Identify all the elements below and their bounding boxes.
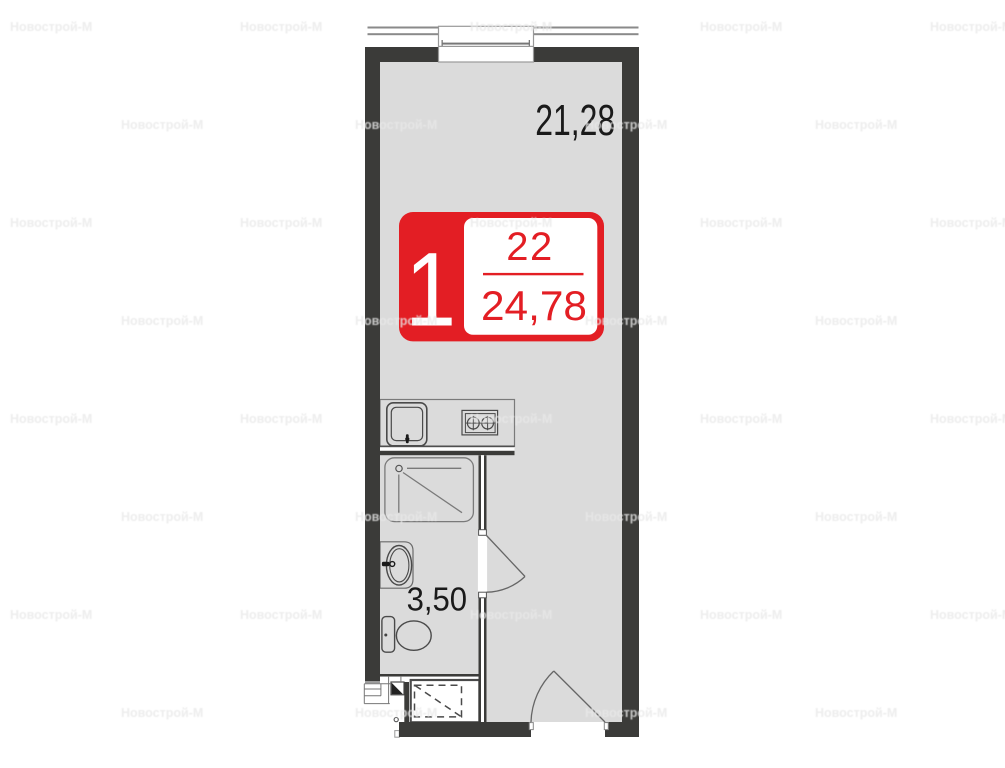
svg-text:Новострой-М: Новострой-М	[585, 118, 667, 132]
svg-text:Новострой-М: Новострой-М	[815, 510, 897, 524]
svg-text:Новострой-М: Новострой-М	[700, 216, 782, 230]
svg-text:Новострой-М: Новострой-М	[355, 706, 437, 720]
svg-text:Новострой-М: Новострой-М	[355, 314, 437, 328]
svg-text:Новострой-М: Новострой-М	[815, 314, 897, 328]
svg-text:Новострой-М: Новострой-М	[930, 412, 1005, 426]
svg-text:Новострой-М: Новострой-М	[240, 412, 322, 426]
svg-text:Новострой-М: Новострой-М	[121, 510, 203, 524]
svg-text:Новострой-М: Новострой-М	[700, 412, 782, 426]
svg-text:Новострой-М: Новострой-М	[815, 706, 897, 720]
svg-text:Новострой-М: Новострой-М	[240, 216, 322, 230]
svg-text:Новострой-М: Новострой-М	[355, 118, 437, 132]
svg-text:24,78: 24,78	[481, 282, 587, 329]
svg-text:Новострой-М: Новострой-М	[700, 20, 782, 34]
svg-text:Новострой-М: Новострой-М	[10, 216, 92, 230]
svg-text:3,50: 3,50	[407, 582, 468, 619]
svg-text:Новострой-М: Новострой-М	[10, 412, 92, 426]
svg-text:1: 1	[405, 232, 456, 349]
svg-text:Новострой-М: Новострой-М	[10, 608, 92, 622]
svg-text:Новострой-М: Новострой-М	[240, 608, 322, 622]
svg-text:Новострой-М: Новострой-М	[470, 412, 552, 426]
svg-text:Новострой-М: Новострой-М	[470, 608, 552, 622]
svg-text:Новострой-М: Новострой-М	[815, 118, 897, 132]
svg-text:Новострой-М: Новострой-М	[355, 510, 437, 524]
svg-text:Новострой-М: Новострой-М	[10, 20, 92, 34]
svg-text:Новострой-М: Новострой-М	[585, 510, 667, 524]
svg-text:22: 22	[506, 225, 554, 269]
svg-text:Новострой-М: Новострой-М	[240, 20, 322, 34]
svg-text:Новострой-М: Новострой-М	[930, 216, 1005, 230]
svg-text:Новострой-М: Новострой-М	[470, 20, 552, 34]
svg-text:Новострой-М: Новострой-М	[121, 706, 203, 720]
svg-text:Новострой-М: Новострой-М	[930, 608, 1005, 622]
svg-text:Новострой-М: Новострой-М	[121, 118, 203, 132]
svg-text:Новострой-М: Новострой-М	[585, 314, 667, 328]
svg-text:Новострой-М: Новострой-М	[470, 216, 552, 230]
svg-text:Новострой-М: Новострой-М	[930, 20, 1005, 34]
svg-text:Новострой-М: Новострой-М	[585, 706, 667, 720]
svg-text:Новострой-М: Новострой-М	[121, 314, 203, 328]
svg-text:Новострой-М: Новострой-М	[700, 608, 782, 622]
